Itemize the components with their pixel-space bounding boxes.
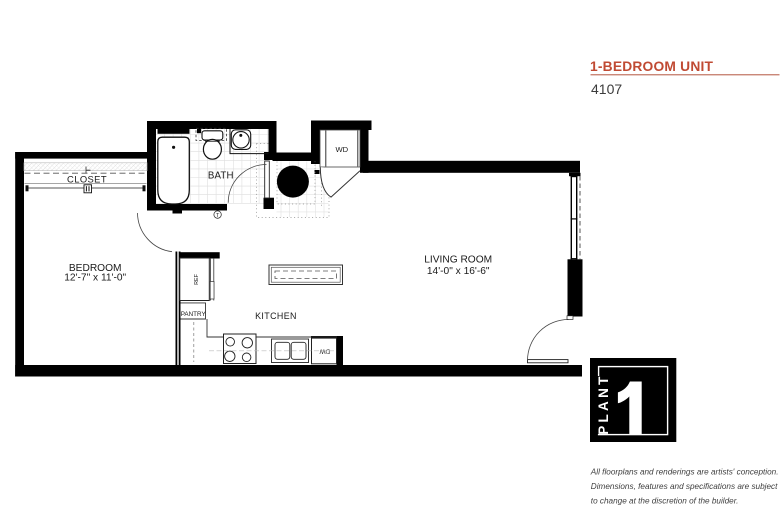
- svg-text:Dimensions, features and speci: Dimensions, features and specifications …: [591, 482, 778, 491]
- svg-text:PLANT: PLANT: [596, 373, 611, 435]
- svg-text:All floorplans and renderings: All floorplans and renderings are artist…: [590, 468, 779, 477]
- svg-text:CLOSET: CLOSET: [67, 174, 107, 185]
- svg-text:PANTRY: PANTRY: [181, 311, 207, 318]
- svg-text:to change at the discretion of: to change at the discretion of the build…: [591, 496, 739, 505]
- svg-text:BATH: BATH: [208, 171, 234, 182]
- svg-text:12'-7" x 11'-0": 12'-7" x 11'-0": [64, 273, 126, 284]
- svg-text:REF: REF: [194, 273, 200, 284]
- svg-text:4107: 4107: [591, 81, 622, 97]
- svg-text:KITCHEN: KITCHEN: [255, 311, 297, 321]
- svg-text:1-BEDROOM UNIT: 1-BEDROOM UNIT: [590, 59, 714, 74]
- svg-text:LIVING ROOM: LIVING ROOM: [424, 255, 492, 266]
- svg-text:WD: WD: [335, 145, 348, 154]
- svg-text:14'-0" x 16'-6": 14'-0" x 16'-6": [427, 266, 490, 277]
